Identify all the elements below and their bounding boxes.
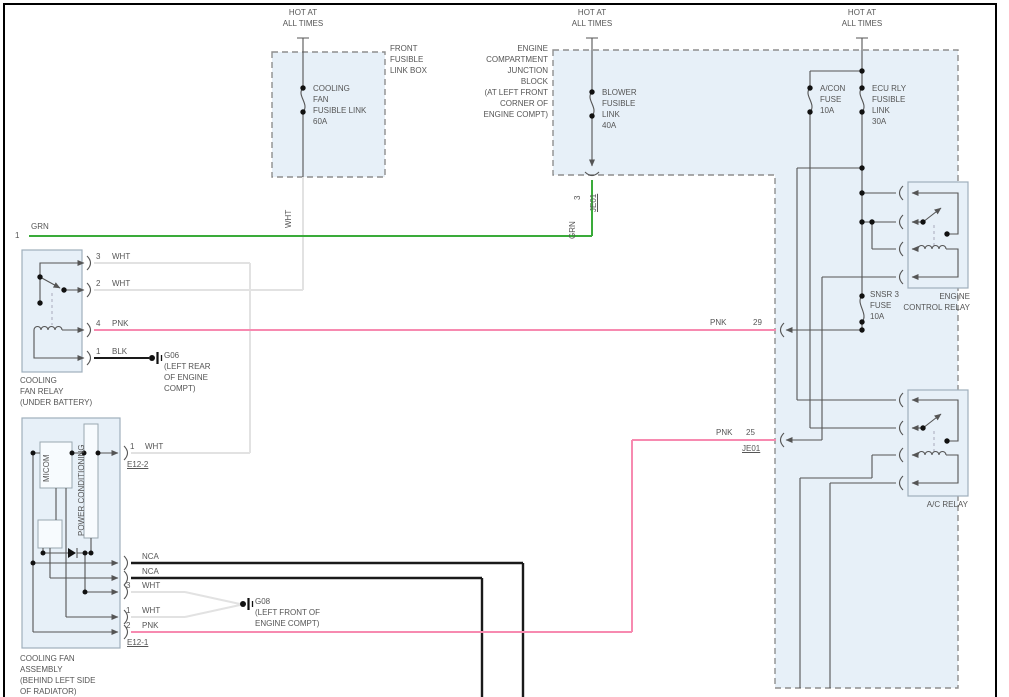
jb-je01-label-top: JE01 bbox=[589, 194, 598, 212]
e12-2-pin1-color: WHT bbox=[145, 442, 163, 451]
jb-name-2: COMPARTMENT bbox=[428, 55, 548, 64]
jb-name-4: BLOCK bbox=[428, 77, 548, 86]
fan-relay-pin3-color: WHT bbox=[112, 252, 130, 261]
fan-relay-pin3-num: 3 bbox=[96, 252, 100, 261]
fan-relay-pin4-color: PNK bbox=[112, 319, 128, 328]
jb-name-3: JUNCTION bbox=[428, 66, 548, 75]
fan-relay-pin2-color: WHT bbox=[112, 279, 130, 288]
e12-1-nca1-color: NCA bbox=[142, 552, 159, 561]
grn-wire-label-vert: GRN bbox=[568, 221, 577, 239]
fan-relay-name-1: COOLING bbox=[20, 376, 57, 385]
jb-name-5: (AT LEFT FRONT bbox=[428, 88, 548, 97]
e12-1-pin2-color: PNK bbox=[142, 621, 158, 630]
wht-wires bbox=[94, 177, 303, 617]
ecu-fuse-2: FUSIBLE bbox=[872, 95, 905, 104]
ecu-fuse-4: 30A bbox=[872, 117, 886, 126]
jb-name-7: ENGINE COMPT) bbox=[428, 110, 548, 119]
g08-label-2: (LEFT FRONT OF bbox=[255, 608, 320, 617]
feed1-hot-line2: ALL TIMES bbox=[273, 19, 333, 28]
cooling-fan-fuse-2: FAN bbox=[313, 95, 329, 104]
g08-label-1: G08 bbox=[255, 597, 270, 606]
fan-driver-box bbox=[38, 520, 62, 548]
acon-fuse-2: FUSE bbox=[820, 95, 841, 104]
e12-1-nca2-color: NCA bbox=[142, 567, 159, 576]
jb-pin3-label: 3 bbox=[573, 196, 582, 200]
g06-label-4: COMPT) bbox=[164, 384, 196, 393]
engine-control-relay-name-2: CONTROL RELAY bbox=[850, 303, 970, 312]
pnk25-wire-label: PNK bbox=[716, 428, 732, 437]
wiring-diagram-page: HOT AT ALL TIMES HOT AT ALL TIMES HOT AT… bbox=[0, 0, 1009, 697]
cooling-fan-fuse-3: FUSIBLE LINK bbox=[313, 106, 366, 115]
blower-fuse-1: BLOWER bbox=[602, 88, 637, 97]
e12-1-pin1-color: WHT bbox=[142, 606, 160, 615]
cooling-fan-fuse-1: COOLING bbox=[313, 84, 350, 93]
jb-pin29-label: 29 bbox=[753, 318, 762, 327]
power-conditioning-label: POWER CONDITIONING bbox=[77, 444, 86, 536]
g06-label-1: G06 bbox=[164, 351, 179, 360]
engine-control-relay-box bbox=[908, 182, 968, 288]
g08-ground-symbol bbox=[240, 598, 253, 610]
engine-control-relay-name-1: ENGINE bbox=[850, 292, 970, 301]
engine-compartment-junction-block-box bbox=[553, 50, 958, 688]
fan-relay-name-2: FAN RELAY bbox=[20, 387, 63, 396]
fan-relay-name-3: (UNDER BATTERY) bbox=[20, 398, 92, 407]
ac-relay-name: A/C RELAY bbox=[848, 500, 968, 509]
e12-1-pin3-num: 3 bbox=[126, 581, 130, 590]
nca-wires bbox=[131, 563, 523, 697]
micom-label: MICOM bbox=[42, 454, 51, 482]
g06-label-2: (LEFT REAR bbox=[164, 362, 211, 371]
jb-name-1: ENGINE bbox=[428, 44, 548, 53]
e12-1-pin2-num: 2 bbox=[126, 621, 130, 630]
jb-je01-label-25: JE01 bbox=[742, 444, 760, 453]
front-box-name-2: FUSIBLE bbox=[390, 55, 423, 64]
g06-label-3: OF ENGINE bbox=[164, 373, 208, 382]
power-conditioning-box bbox=[84, 424, 98, 538]
blower-fuse-4: 40A bbox=[602, 121, 616, 130]
fan-assembly-name-3: (BEHIND LEFT SIDE bbox=[20, 676, 95, 685]
fan-relay-pin1-color: BLK bbox=[112, 347, 127, 356]
feed3-hot-line1: HOT AT bbox=[832, 8, 892, 17]
front-box-name-1: FRONT bbox=[390, 44, 418, 53]
feed1-hot-line1: HOT AT bbox=[273, 8, 333, 17]
pnk29-wire-label: PNK bbox=[710, 318, 726, 327]
acon-fuse-3: 10A bbox=[820, 106, 834, 115]
front-box-name-3: LINK BOX bbox=[390, 66, 427, 75]
acon-fuse-1: A/CON bbox=[820, 84, 845, 93]
fan-relay-pin1-num: 1 bbox=[96, 347, 100, 356]
feed2-hot-line2: ALL TIMES bbox=[562, 19, 622, 28]
g06-ground-symbol bbox=[149, 352, 162, 364]
grn-wire bbox=[29, 180, 592, 236]
cooling-fan-fuse-4: 60A bbox=[313, 117, 327, 126]
e12-2-connector-label: E12-2 bbox=[127, 460, 148, 469]
grn-wire-label: GRN bbox=[31, 222, 49, 231]
ecu-fuse-1: ECU RLY bbox=[872, 84, 906, 93]
fan-relay-pin2-num: 2 bbox=[96, 279, 100, 288]
g08-label-3: ENGINE COMPT) bbox=[255, 619, 319, 628]
blower-fuse-2: FUSIBLE bbox=[602, 99, 635, 108]
snsr-fuse-3: 10A bbox=[870, 312, 884, 321]
fan-assembly-name-2: ASSEMBLY bbox=[20, 665, 63, 674]
e12-1-pin1-num: 1 bbox=[126, 606, 130, 615]
blower-fuse-3: LINK bbox=[602, 110, 620, 119]
wht-wire-label: WHT bbox=[284, 210, 293, 228]
grn-circuit-number: 1 bbox=[15, 231, 19, 240]
e12-1-connector-label: E12-1 bbox=[127, 638, 148, 647]
feed3-hot-line2: ALL TIMES bbox=[832, 19, 892, 28]
feed2-hot-line1: HOT AT bbox=[562, 8, 622, 17]
ecu-fuse-3: LINK bbox=[872, 106, 890, 115]
fan-assembly-name-1: COOLING FAN bbox=[20, 654, 75, 663]
fan-relay-pin4-num: 4 bbox=[96, 319, 100, 328]
e12-1-pin3-color: WHT bbox=[142, 581, 160, 590]
ac-relay-box bbox=[908, 390, 968, 496]
jb-name-6: CORNER OF bbox=[428, 99, 548, 108]
fan-assembly-name-4: OF RADIATOR) bbox=[20, 687, 77, 696]
jb-pin25-label: 25 bbox=[746, 428, 755, 437]
e12-2-pin1-num: 1 bbox=[130, 442, 134, 451]
